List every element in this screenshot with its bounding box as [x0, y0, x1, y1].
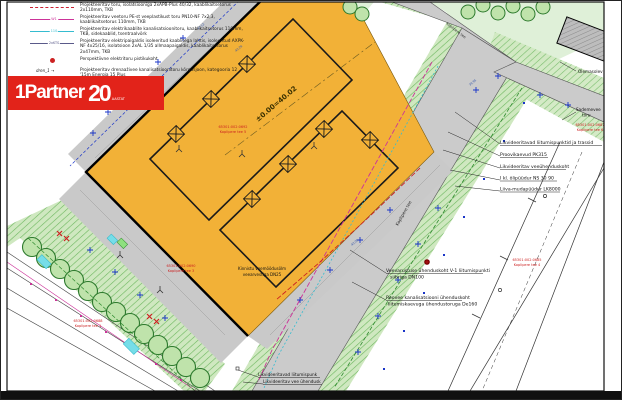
svg-text:Koplipere tee 5: Koplipere tee 5 [220, 130, 246, 134]
svg-text:65301:002:0687: 65301:002:0687 [575, 123, 604, 127]
note-proovikaevud: Proovikaevud PK315 [500, 152, 547, 158]
svg-text:65301:002:0688: 65301:002:0688 [73, 319, 102, 323]
legend-swatch-cyan-line: 110 [28, 27, 80, 35]
legend-row-cable: 2xKTS Projekteeritav elektripaigaldis is… [28, 39, 263, 54]
note-bottom-2: Likvideeritav vee ühendusk [263, 379, 321, 384]
logo-years-text: 20 [88, 80, 110, 107]
note-veevarustus-line1: Veevarustuse ühenduskoht V-1 liitumispun… [386, 268, 490, 274]
note-reovesi-line1: Reovee kanalisatsiooni ühenduskoht [386, 295, 470, 301]
note-reovesi-line2: liitumiskaevuga ühendustoruga De160 [388, 302, 477, 308]
svg-text:Koplipere tee 3: Koplipere tee 3 [168, 269, 194, 273]
note-sademevee-line1: Sademevee [576, 107, 601, 112]
company-logo: 1Partner 20 AASTAT [8, 76, 164, 110]
parcel-label-tee6: 65301:002:0687 Koplipere tee 6 [575, 123, 604, 132]
parcel-label-tee5: 65301:002:0692 Koplipere tee 5 [218, 125, 247, 134]
svg-text:Koplipere tee 4: Koplipere tee 4 [514, 263, 541, 267]
note-veemoodusolm-line2: veearvestiga DN25 [243, 272, 282, 277]
svg-text:Koplipere tee 1: Koplipere tee 1 [75, 324, 101, 328]
note-sademevee-line2: toru [582, 113, 591, 118]
legend-label: Projekteeritav elektrikaablite kanalisat… [80, 27, 245, 37]
legend-label: Projekteeritav elektripaigaldis isoleeri… [80, 39, 245, 54]
svg-text:65301:002:0692: 65301:002:0692 [218, 125, 247, 129]
legend-label: Perspektiivne elektritoru pistikukoht [80, 57, 158, 62]
legend-swatch-slate-line: 2xKTS [28, 39, 80, 47]
legend-row-electric: 110 Projekteeritav elektrikaablite kanal… [28, 27, 263, 37]
note-veemoodusolm-line1: Kinnistu veemõõdusõlm [238, 266, 286, 271]
logo-years-label: AASTAT [112, 97, 125, 101]
parcel-label-tee3: 65301:002:0690 Koplipere tee 3 [166, 264, 195, 273]
legend-row-water: W1 Projekteeritav veetoru PE-st veeplast… [28, 15, 263, 25]
note-olipuudur: I kl. õlipüüdur NS 30 90 [500, 176, 554, 182]
note-olemasolev: Olemasolev [578, 69, 603, 74]
site-plan-image: 40.12 40.28 39.95 40.05 Likvideeritavad … [0, 0, 622, 400]
logo-brand-text: 1Partner [15, 82, 84, 104]
svg-text:Koplipere tee 6: Koplipere tee 6 [577, 128, 603, 132]
parcel-label-tee1: 65301:002:0688 Koplipere tee 1 [73, 319, 102, 328]
legend-row-pipe: Projekteeritav toru, isolatsiooniga 2xAP… [28, 3, 263, 13]
legend-label: Projekteeritav veetoru PE-st veeplastiku… [80, 15, 245, 25]
note-likvideeritavad-trassid: Likvideeritavad liitumispunktid ja trass… [500, 140, 593, 146]
legend-swatch-magenta-line: W1 [28, 15, 80, 23]
legend-swatch-red-dashed-line [28, 3, 80, 11]
note-bottom-1: Likvideeritavad liitumispunk [258, 372, 318, 377]
note-likvideeritav-veeyhendus: Likvideeritav veeühenduskoht [500, 164, 569, 170]
legend-swatch-red-dot-icon [28, 57, 80, 65]
legend-swatch-dren-text: dren_1 → [28, 68, 80, 76]
svg-text:65301:002:0690: 65301:002:0690 [166, 264, 195, 268]
svg-text:65301:002:0685: 65301:002:0685 [512, 258, 541, 262]
parcel-label-tee4: 65301:002:0685 Koplipere tee 4 [512, 258, 541, 267]
note-veevarustus-line2: siibriga DN100 [390, 275, 424, 281]
note-mudapuudur: Liiva-mudapüüdur LK8000 [500, 187, 561, 193]
legend-row-socket: Perspektiivne elektritoru pistikukoht [28, 57, 263, 66]
legend-label: Projekteeritav toru, isolatsiooniga 2xAP… [80, 3, 245, 13]
